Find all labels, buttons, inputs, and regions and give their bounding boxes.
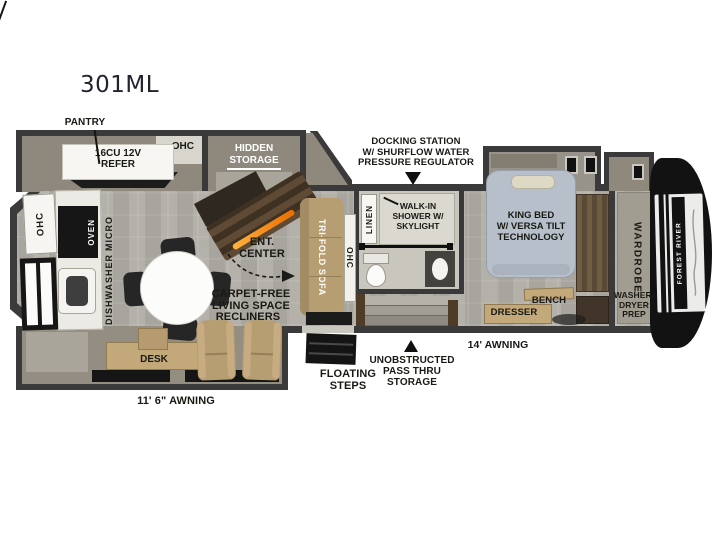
step-line — [309, 342, 353, 346]
micro-label: MICRO — [104, 216, 114, 251]
microwave: MICRO — [102, 210, 116, 256]
ohc-label: OHC — [172, 141, 194, 152]
brand-logo-strip: FOREST RIVER — [672, 197, 688, 309]
tv-shadow — [552, 314, 586, 325]
shower-door-knob — [447, 243, 453, 250]
carpet-free-label: CARPET-FREE LIVING SPACE — [192, 288, 310, 313]
recliner — [242, 319, 282, 380]
sofa-ohc-label: OHC — [345, 247, 355, 269]
recliners-label: RECLINERS — [203, 311, 293, 323]
pass-thru-callout: UNOBSTRUCTED PASS THRU STORAGE — [366, 355, 458, 389]
sofa-ohc-cabinet: OHC — [344, 214, 356, 302]
king-bed: KING BED W/ VERSA TILT TECHNOLOGY — [486, 170, 576, 278]
rear-ohc-cabinet: OHC — [22, 193, 57, 255]
desk-label: DESK — [140, 354, 168, 365]
recliner-arm — [243, 321, 252, 377]
bathroom: LINEN WALK-IN SHOWER W/ SKYLIGHT — [354, 186, 464, 294]
kitchen-sink — [58, 268, 96, 314]
bed-pillow — [511, 175, 555, 189]
vanity-basin — [432, 258, 448, 280]
bathroom-vanity — [425, 251, 455, 287]
bench-label: BENCH — [520, 296, 578, 307]
front-upper-deck — [604, 152, 654, 192]
recliner-arm — [197, 322, 206, 378]
hall-step — [362, 316, 458, 326]
king-bed-label: KING BED W/ VERSA TILT TECHNOLOGY — [487, 211, 575, 244]
linen-label: LINEN — [365, 205, 374, 234]
hall-step — [362, 306, 458, 316]
entry-landing — [306, 312, 352, 325]
exterior-steps — [305, 333, 356, 365]
brand-script-decoration — [688, 203, 703, 299]
recliner-arm — [272, 322, 281, 378]
dishwasher-label: DISHWASHER — [104, 254, 114, 325]
oven: OVEN — [84, 208, 98, 256]
wardrobe-label: WARDROBE — [632, 222, 643, 293]
awning-rear-label: 11' 6" AWNING — [128, 395, 224, 407]
refrigerator: 16CU 12V REFER — [62, 144, 174, 180]
hall-step — [362, 296, 458, 306]
dishwasher: DISHWASHER — [102, 252, 116, 328]
brand-label: FOREST RIVER — [675, 222, 684, 285]
window-pane — [40, 263, 53, 325]
floating-steps-leader-line — [0, 1, 7, 30]
sofa-seam — [309, 276, 342, 277]
docking-station-callout: DOCKING STATION W/ SHURFLOW WATER PRESSU… — [355, 137, 477, 169]
pass-thru-arrow-icon — [404, 340, 418, 352]
entry-door — [302, 326, 354, 333]
toilet — [366, 264, 386, 287]
shower-door-bar — [361, 245, 453, 248]
recliner-seam — [251, 353, 273, 356]
hall-steps — [362, 296, 458, 326]
bedroom-window — [584, 156, 597, 174]
upper-deck-window — [632, 164, 644, 180]
side-table — [138, 328, 168, 350]
docking-arrow-icon — [405, 172, 421, 185]
sofa-seam — [309, 237, 342, 238]
hidden-storage-label: HIDDEN STORAGE — [227, 143, 280, 170]
dresser-label: DRESSER — [486, 308, 542, 319]
recliner — [196, 319, 236, 380]
angled-roof — [304, 133, 348, 185]
kitchen-slide-out: 16CU 12V REFER OHC — [16, 130, 208, 192]
hall-rail — [356, 294, 365, 326]
cap-stripe — [665, 188, 671, 319]
shower-door-knob — [359, 243, 365, 250]
front-cap: FOREST RIVER — [650, 158, 712, 348]
window-pane — [25, 263, 38, 325]
linen-cabinet: LINEN — [361, 194, 377, 244]
wardrobe-doors — [576, 194, 609, 292]
pantry-callout: PANTRY — [50, 117, 120, 128]
sink-basin — [66, 276, 88, 306]
slide-floor — [26, 332, 88, 372]
hall-rail — [448, 300, 458, 326]
floorplan-301ml: 301ML 16CU 12V REFER OHC HIDDEN STORAGE … — [0, 0, 720, 540]
ent-center-label: ENT. CENTER — [216, 236, 308, 261]
shower-label: WALK-IN SHOWER W/ SKYLIGHT — [379, 202, 457, 231]
recliner-seam — [205, 353, 227, 356]
page-title: 301ML — [80, 72, 159, 98]
sofa-label: TRI-FOLD SOFA — [317, 219, 327, 296]
refrigerator-label: 16CU 12V REFER — [63, 148, 173, 170]
front-cap-band: FOREST RIVER — [654, 193, 705, 312]
recliner-arm — [226, 321, 235, 377]
bed-foot — [492, 264, 570, 275]
rear-window — [20, 257, 58, 330]
rear-ohc-label: OHC — [34, 212, 46, 237]
washer-dryer-label: WASHER/ DRYER PREP — [613, 291, 655, 320]
slide-window-mat — [92, 370, 170, 382]
step-line — [309, 352, 353, 356]
oven-label: OVEN — [87, 219, 96, 246]
headboard-shelf — [491, 154, 557, 168]
awning-front-label: 14' AWNING — [460, 340, 536, 352]
toilet-tank — [363, 253, 389, 264]
